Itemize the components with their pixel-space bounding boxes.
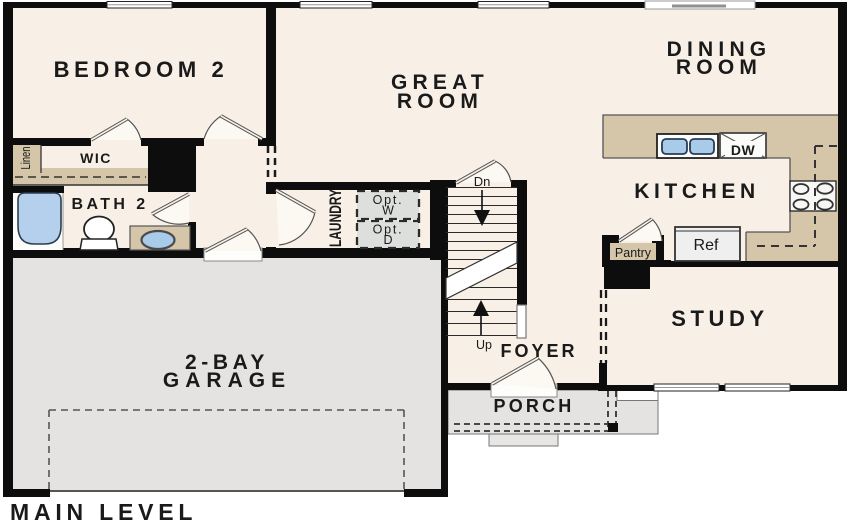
svg-text:W: W [382, 204, 394, 218]
svg-text:Ref: Ref [694, 237, 719, 254]
svg-text:D: D [383, 233, 392, 247]
svg-text:Pantry: Pantry [615, 246, 652, 260]
svg-text:Up: Up [476, 338, 492, 352]
svg-text:ROOM: ROOM [676, 56, 762, 79]
svg-text:Linen: Linen [18, 147, 33, 170]
svg-text:PORCH: PORCH [493, 396, 574, 416]
svg-text:MAIN LEVEL: MAIN LEVEL [10, 499, 197, 520]
svg-text:LAUNDRY: LAUNDRY [327, 189, 345, 247]
svg-text:BATH 2: BATH 2 [72, 196, 149, 213]
svg-text:FOYER: FOYER [500, 341, 577, 361]
svg-text:BEDROOM 2: BEDROOM 2 [54, 57, 229, 82]
svg-text:Dn: Dn [474, 174, 491, 189]
svg-text:STUDY: STUDY [671, 306, 769, 331]
svg-text:DW: DW [731, 142, 756, 158]
svg-text:ROOM: ROOM [397, 90, 483, 113]
svg-text:KITCHEN: KITCHEN [634, 180, 760, 203]
svg-text:GARAGE: GARAGE [163, 369, 291, 392]
svg-text:WIC: WIC [80, 150, 112, 166]
